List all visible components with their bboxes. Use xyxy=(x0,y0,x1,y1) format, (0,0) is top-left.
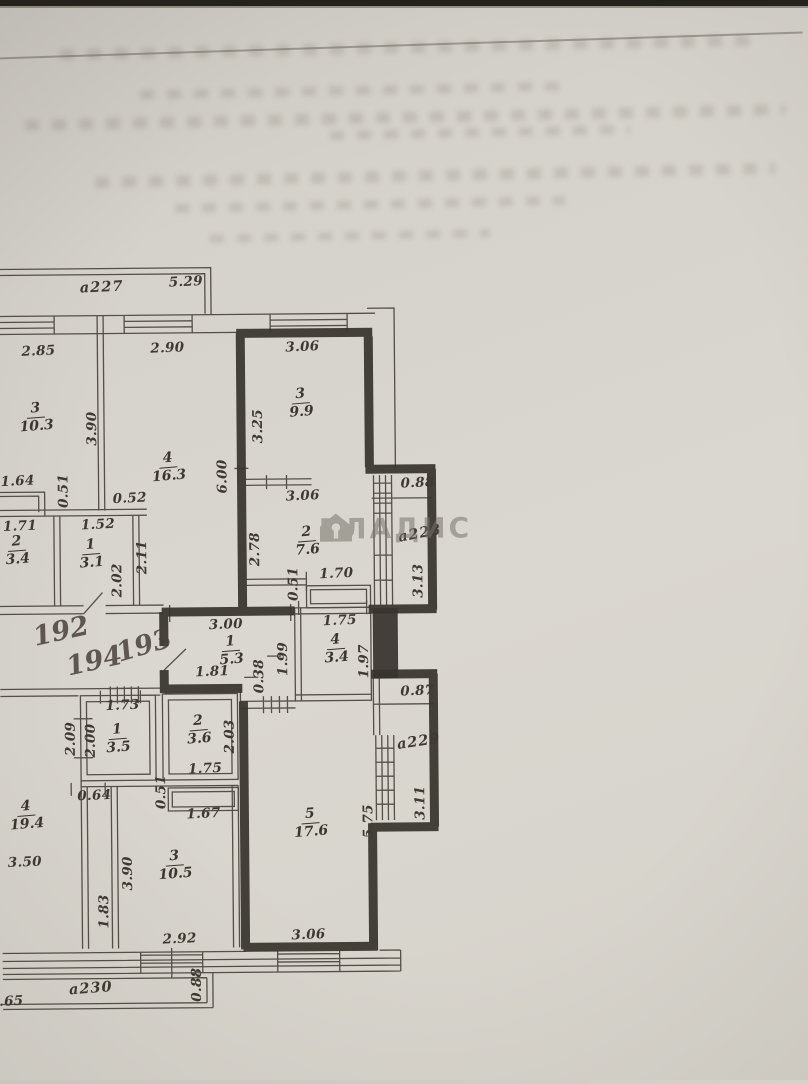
room-number: 4 xyxy=(158,450,177,468)
room-area: 10.3 xyxy=(14,417,59,435)
dimension-label: 2.03 xyxy=(222,719,238,753)
room-label: 13.5 xyxy=(95,721,141,757)
dimension-label: 1.75 xyxy=(322,612,357,629)
dimension-label: 1.83 xyxy=(96,894,112,928)
room-area: 16.3 xyxy=(147,467,192,485)
thick-wall-block xyxy=(373,608,399,678)
room-number: 2 xyxy=(297,524,316,542)
house-icon xyxy=(319,512,353,542)
photo-surface: 5.29 2.85 2.90 3.06 3.90 6.00 3.25 1.64 … xyxy=(0,0,808,1080)
room-number: 1 xyxy=(108,722,127,740)
dimension-label: 3.90 xyxy=(120,856,136,890)
floor-plan: 5.29 2.85 2.90 3.06 3.90 6.00 3.25 1.64 … xyxy=(0,0,808,1083)
dimension-label: 0.88 xyxy=(400,474,435,491)
room-label: 310.3 xyxy=(13,399,59,435)
dimension-label: 3.06 xyxy=(291,926,326,943)
dimension-label: 3.90 xyxy=(84,412,100,446)
room-label: 416.3 xyxy=(145,449,191,485)
dimension-label: 0.64 xyxy=(77,787,112,804)
dimension-label: 1.75 xyxy=(188,760,223,777)
dimension-label: 3.50 xyxy=(8,854,43,871)
room-label: 39.9 xyxy=(278,385,324,421)
room-number: 1 xyxy=(81,537,100,555)
room-number: 3 xyxy=(26,401,45,419)
room-number: 2 xyxy=(189,713,208,731)
room-area: 10.5 xyxy=(153,865,198,883)
dimension-label: .65 xyxy=(0,993,24,1010)
dimension-label: 6.00 xyxy=(214,459,230,493)
room-number: 3 xyxy=(291,386,310,404)
room-label: 23.6 xyxy=(175,712,221,748)
dimension-label: 2.85 xyxy=(21,342,56,359)
dimension-label: 3.06 xyxy=(285,487,320,504)
dimension-label: 3.11 xyxy=(412,786,428,820)
balcony-label: а230 xyxy=(68,978,113,998)
balcony-label: а227 xyxy=(79,278,123,297)
room-label: 517.6 xyxy=(287,805,333,841)
room-number: 5 xyxy=(300,806,319,824)
dimension-label: 0.51 xyxy=(153,775,169,809)
room-label: 419.4 xyxy=(3,798,49,834)
dimension-label: 1.52 xyxy=(81,516,116,533)
dimension-label: 0.88 xyxy=(189,968,205,1002)
dimension-label: 2.92 xyxy=(162,930,197,947)
room-number: 1 xyxy=(221,634,240,652)
dimension-label: 5.75 xyxy=(360,804,376,838)
dimension-label: 3.00 xyxy=(208,616,243,633)
dimension-label: 0.87 xyxy=(400,682,435,699)
dimension-label: 1.73 xyxy=(105,697,140,714)
room-number: 2 xyxy=(7,534,26,552)
dimension-label: 3.13 xyxy=(410,564,426,598)
room-number: 3 xyxy=(165,848,184,866)
dimension-label: 2.78 xyxy=(247,532,263,566)
room-area: 17.6 xyxy=(289,823,334,841)
dimension-label: 0.51 xyxy=(285,567,301,601)
dimension-label: 1.70 xyxy=(319,565,354,582)
room-label: 13.1 xyxy=(68,536,114,572)
dimension-label: 1.99 xyxy=(275,642,291,676)
dimension-label: 5.29 xyxy=(168,273,203,290)
room-label: 310.5 xyxy=(152,847,198,883)
dimension-label: 1.64 xyxy=(0,473,35,490)
room-area: 19.4 xyxy=(5,815,50,833)
watermark: ВЛАДИС xyxy=(319,511,472,545)
dimension-label: 0.51 xyxy=(55,474,71,508)
room-number: 4 xyxy=(326,632,345,650)
room-label: 43.4 xyxy=(313,631,359,667)
dimension-label: 2.11 xyxy=(134,540,150,574)
dimension-label: 3.06 xyxy=(285,338,320,355)
dimension-label: 3.25 xyxy=(250,409,266,443)
dimension-label: 2.90 xyxy=(150,339,185,356)
dimension-label: 1.67 xyxy=(186,805,221,822)
second-paper-edge xyxy=(0,32,803,58)
room-number: 4 xyxy=(16,799,35,817)
room-label: 23.4 xyxy=(0,533,40,569)
photo-of-floor-plan: { "document": { "type": "BTI floor plan … xyxy=(0,0,808,1080)
room-label: 15.3 xyxy=(208,633,254,669)
dimension-label: 2.09 xyxy=(63,722,79,756)
dimension-label: 0.52 xyxy=(112,490,147,507)
